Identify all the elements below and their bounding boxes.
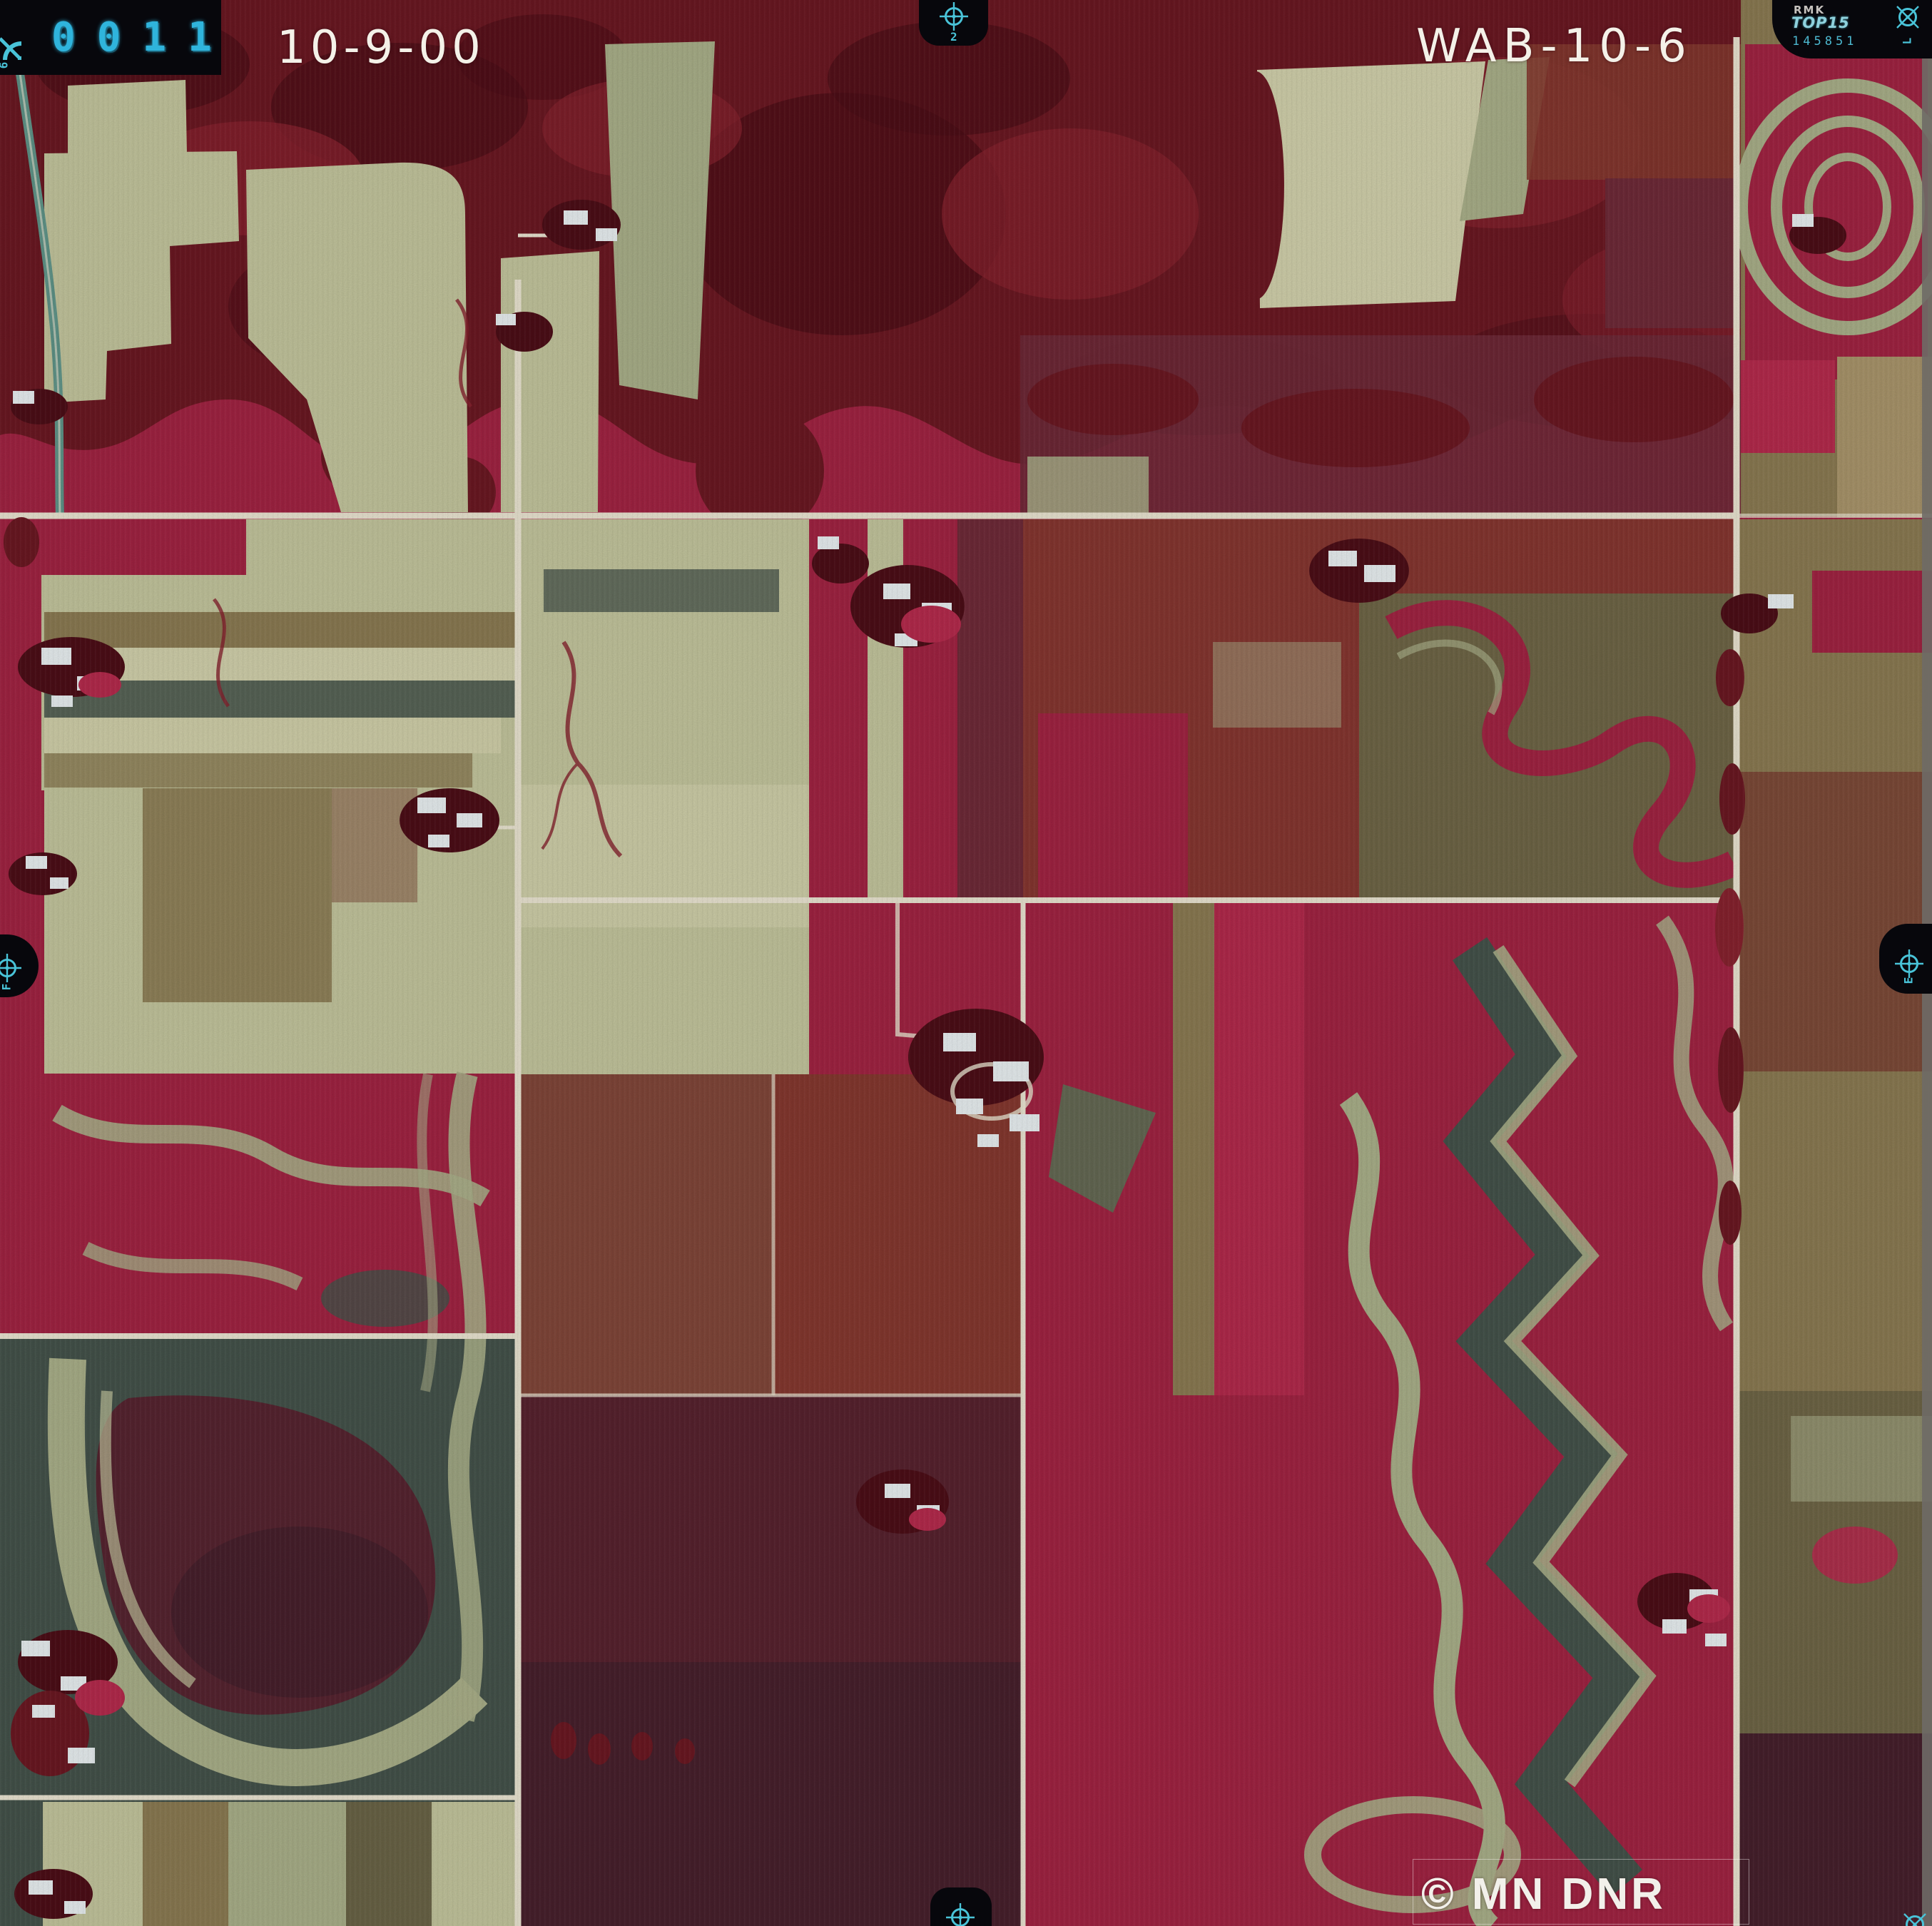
fiducial-tab-right: E: [1879, 924, 1932, 994]
frame-counter-strip: 6 0011: [0, 0, 221, 75]
fiducial-tab-top: 2: [919, 0, 988, 46]
photo-id-label: WAB-10-6: [1416, 20, 1693, 73]
fiducial-corner-tr-label: L: [1900, 38, 1913, 45]
fiducial-left-label: F: [0, 984, 13, 991]
camera-info-tab: RMK TOP15 145851 L: [1772, 0, 1932, 58]
fiducial-top-label: 2: [950, 30, 957, 44]
aerial-photo: 6 0011 10-9-00 WAB-10-6 RMK TOP15 145851…: [0, 0, 1932, 1926]
fiducial-crosshair-icon: [1892, 1, 1923, 33]
aerial-photo-mosaic: [0, 0, 1932, 1926]
fiducial-crosshair-icon: [1899, 1909, 1931, 1926]
fiducial-tab-bottom: [930, 1887, 992, 1926]
camera-model-label: TOP15: [1791, 14, 1850, 31]
frame-counter: 0011: [51, 14, 233, 61]
fiducial-crosshair-icon: [1893, 948, 1925, 979]
fiducial-right-label: E: [1901, 977, 1915, 984]
fiducial-crosshair-icon: [0, 952, 23, 984]
fiducial-crosshair-icon: [0, 29, 21, 60]
fiducial-crosshair-icon: [945, 1902, 976, 1926]
capture-date: 10-9-00: [277, 21, 485, 74]
camera-serial-label: 145851: [1792, 34, 1857, 49]
fiducial-crosshair-icon: [938, 1, 970, 32]
film-grain-overlay: [0, 0, 1932, 1926]
fiducial-corner-tl-label: 6: [0, 62, 10, 69]
copyright-label: © MN DNR: [1421, 1869, 1666, 1920]
